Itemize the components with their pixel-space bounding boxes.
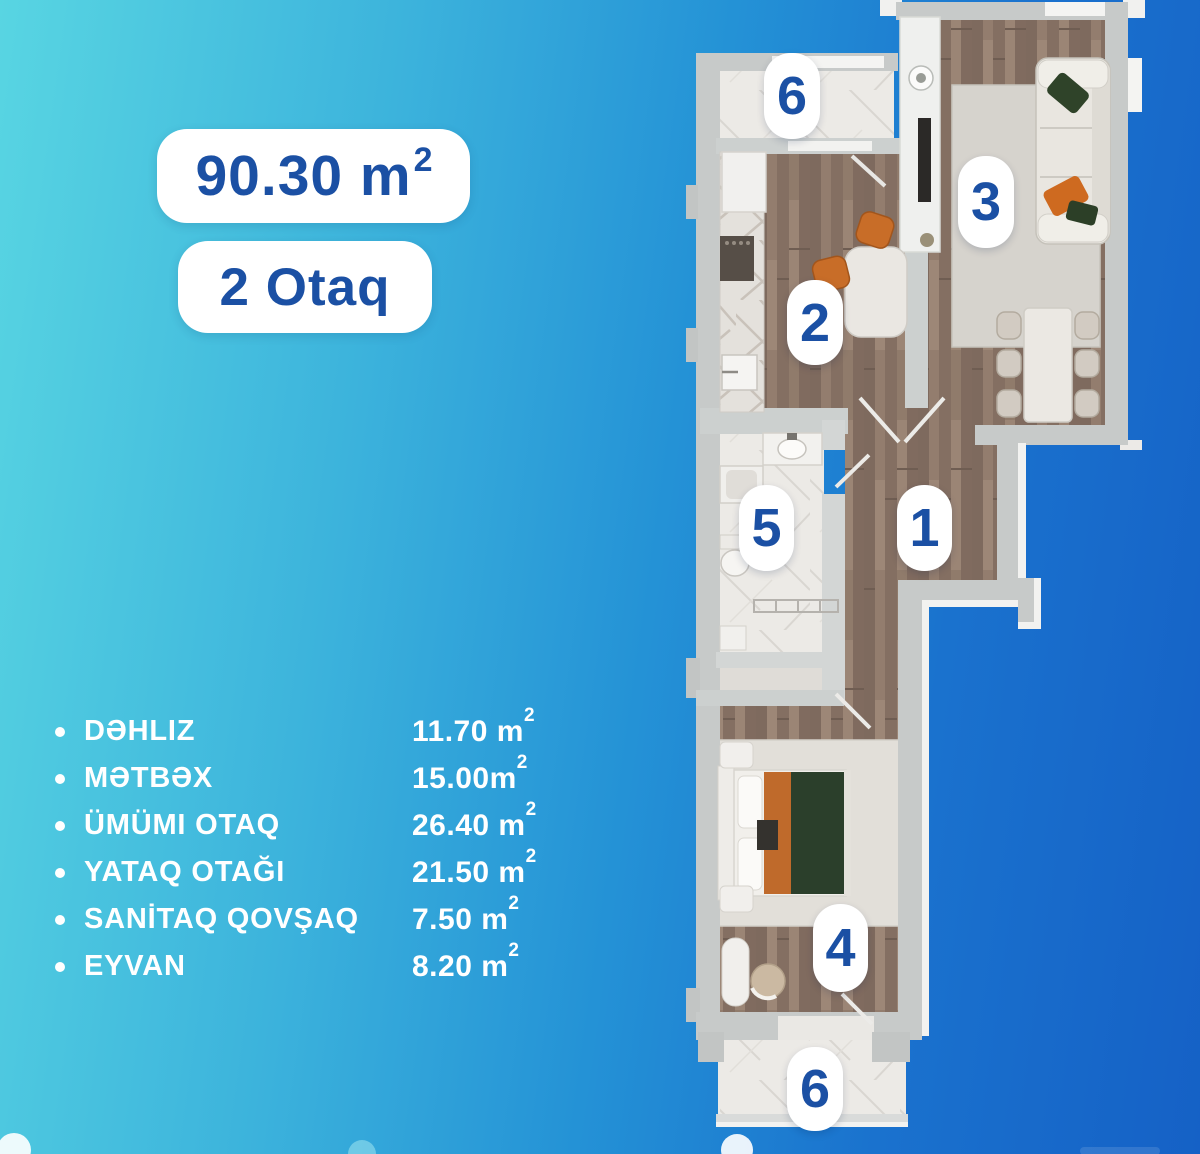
nightstand xyxy=(720,742,753,768)
bed-tray xyxy=(757,820,778,850)
room-area: 11.70 m2 xyxy=(412,714,535,749)
bathroom-shelf xyxy=(720,626,746,650)
tv-screen xyxy=(918,118,931,202)
legend-row-eyvan: EYVAN 8.20 m2 xyxy=(55,943,675,990)
total-area-sup: 2 xyxy=(414,141,434,180)
bullet-icon xyxy=(55,821,65,831)
kitchen-table xyxy=(845,247,907,337)
room-area: 7.50 m2 xyxy=(412,902,519,937)
nightstand xyxy=(720,886,753,912)
watermark-fragments xyxy=(0,1133,1160,1154)
room-label: DƏHLIZ xyxy=(84,715,195,748)
room-count-label: 2 Otaq xyxy=(220,257,391,318)
room-badge-6-bottom: 6 xyxy=(787,1047,843,1131)
room-legend: DƏHLIZ 11.70 m2 MƏTBƏX 15.00m2 ÜMÜMI OTA… xyxy=(55,708,675,990)
room-badge-5: 5 xyxy=(739,485,794,571)
dining-table xyxy=(1024,308,1072,422)
room-count-badge: 2 Otaq xyxy=(178,241,432,333)
decor-plant xyxy=(920,233,934,247)
room-badge-6-top: 6 xyxy=(764,53,820,139)
room-badge-2: 2 xyxy=(787,280,843,365)
room-label: SANİTAQ QOVŞAQ xyxy=(84,903,359,936)
legend-row-dehliz: DƏHLIZ 11.70 m2 xyxy=(55,708,675,755)
hallway-lower-floor xyxy=(845,585,902,706)
shower-floor xyxy=(716,668,824,692)
room-area: 26.40 m2 xyxy=(412,808,537,843)
fridge xyxy=(722,152,766,212)
room-badge-1: 1 xyxy=(897,485,952,571)
room-area: 21.50 m2 xyxy=(412,855,537,890)
room-badge-3: 3 xyxy=(958,156,1014,248)
bullet-icon xyxy=(55,727,65,737)
room-label: ÜMÜMI OTAQ xyxy=(84,809,280,842)
legend-row-sanitaq-qovsaq: SANİTAQ QOVŞAQ 7.50 m2 xyxy=(55,896,675,943)
room-label: YATAQ OTAĞI xyxy=(84,856,285,889)
bullet-icon xyxy=(55,868,65,878)
bullet-icon xyxy=(55,962,65,972)
side-table xyxy=(722,938,749,1006)
legend-row-yataq-otagi: YATAQ OTAĞI 21.50 m2 xyxy=(55,849,675,896)
total-area-badge: 90.30 m2 xyxy=(157,129,470,223)
room-badge-4: 4 xyxy=(813,904,868,992)
bed-headboard xyxy=(718,766,734,900)
bed-blanket-green xyxy=(791,772,844,894)
total-area-value: 90.30 m xyxy=(195,143,411,209)
page-canvas: 90.30 m2 2 Otaq DƏHLIZ 11.70 m2 MƏTBƏX 1… xyxy=(0,0,1200,1154)
bullet-icon xyxy=(55,915,65,925)
tv-unit xyxy=(900,17,940,252)
room-area: 8.20 m2 xyxy=(412,949,519,984)
room-area: 15.00m2 xyxy=(412,761,528,796)
legend-row-umumi-otaq: ÜMÜMI OTAQ 26.40 m2 xyxy=(55,802,675,849)
room-label: EYVAN xyxy=(84,950,186,983)
room-label: MƏTBƏX xyxy=(84,762,213,795)
legend-row-metbex: MƏTBƏX 15.00m2 xyxy=(55,755,675,802)
bullet-icon xyxy=(55,774,65,784)
